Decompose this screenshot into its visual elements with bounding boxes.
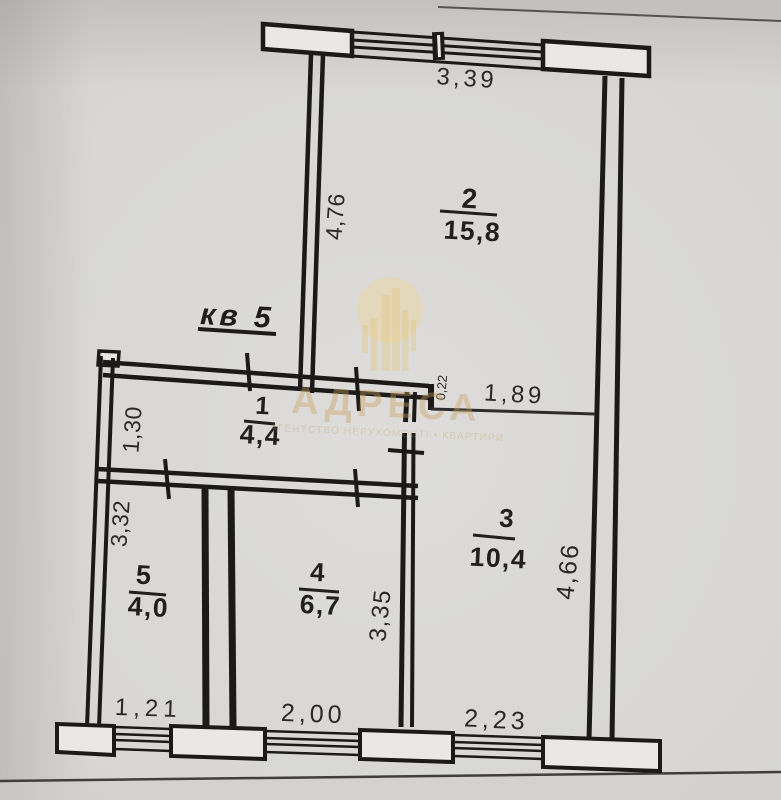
- svg-text:2,00: 2,00: [280, 699, 346, 729]
- svg-text:1: 1: [255, 392, 270, 421]
- svg-text:1,30: 1,30: [117, 405, 146, 453]
- svg-text:4,76: 4,76: [320, 192, 349, 240]
- svg-text:4,0: 4,0: [127, 591, 170, 623]
- svg-text:1,89: 1,89: [483, 379, 545, 409]
- svg-text:5: 5: [135, 560, 152, 591]
- svg-text:АДРЕСА: АДРЕСА: [290, 380, 482, 430]
- svg-text:15,8: 15,8: [443, 215, 502, 248]
- svg-text:3,35: 3,35: [364, 588, 396, 643]
- svg-text:6,7: 6,7: [299, 589, 342, 621]
- svg-text:1,21: 1,21: [114, 694, 182, 723]
- svg-text:2,23: 2,23: [463, 704, 529, 735]
- svg-text:10,4: 10,4: [469, 542, 528, 575]
- svg-text:4: 4: [309, 557, 326, 588]
- svg-text:3: 3: [498, 503, 514, 534]
- svg-text:4,66: 4,66: [551, 542, 585, 601]
- svg-text:2: 2: [461, 183, 478, 215]
- svg-text:3,39: 3,39: [436, 63, 498, 94]
- svg-text:3,32: 3,32: [105, 499, 134, 547]
